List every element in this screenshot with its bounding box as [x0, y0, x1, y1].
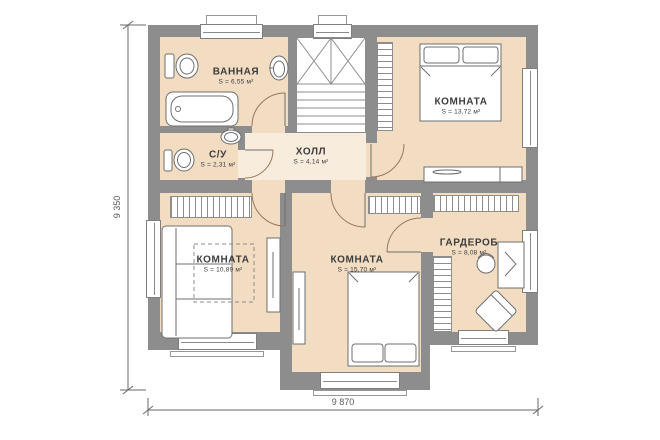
toilet-icon [165, 54, 198, 78]
door-arc-wc [245, 150, 273, 178]
room-name: КОМНАТА [434, 97, 487, 108]
room-name: С/У [200, 150, 235, 161]
dimension-label-horizontal: 9 870 [332, 397, 355, 407]
plan-symbols-layer [0, 0, 660, 440]
room-area: S = 15,70 м² [330, 267, 383, 274]
door-arc-bathroom [252, 93, 285, 126]
room-name: КОМНАТА [196, 255, 249, 266]
room-area: S = 4,14 м² [293, 159, 328, 166]
dimension-label-vertical: 9 350 [112, 196, 122, 219]
room-area: S = 13,72 м² [434, 109, 487, 116]
wardrobe-cabinet-icon [267, 238, 280, 312]
room-label-wardrobe: ГАРДЕРОБ S = 8,08 м² [440, 238, 498, 257]
door-arc-bedroom-center [331, 193, 365, 227]
bathtub-icon [166, 92, 238, 126]
room-area: S = 8,08 м² [440, 250, 498, 257]
room-label-bedroom-center: КОМНАТА S = 15,70 м² [330, 255, 383, 274]
wardrobe-cabinet-icon [293, 272, 305, 344]
room-area: S = 10,89 м² [196, 267, 249, 274]
sofa-icon [162, 226, 232, 338]
stairs-icon [297, 38, 366, 133]
room-area: S = 6,55 м² [213, 79, 259, 86]
sink-icon [269, 56, 288, 80]
door-arc-bedroom-top [371, 144, 404, 177]
armchair-icon [475, 290, 517, 332]
sink-icon [221, 128, 241, 144]
dresser-icon [424, 167, 522, 182]
room-area: S = 2,31 м² [200, 162, 235, 169]
room-label-hall: ХОЛЛ S = 4,14 м² [293, 147, 328, 166]
room-label-bedroom-left: КОМНАТА S = 10,89 м² [196, 255, 249, 274]
room-name: ХОЛЛ [293, 147, 328, 158]
floor-plan: ВАННАЯ S = 6,55 м² С/У S = 2,31 м² ХОЛЛ … [0, 0, 660, 440]
door-arc-bedroom-left [252, 193, 285, 226]
room-label-bathroom: ВАННАЯ S = 6,55 м² [213, 67, 259, 86]
door-arc-wardrobe [387, 218, 421, 252]
room-name: ВАННАЯ [213, 67, 259, 78]
room-name: ГАРДЕРОБ [440, 238, 498, 249]
room-label-wc: С/У S = 2,31 м² [200, 150, 235, 169]
room-label-bedroom-top: КОМНАТА S = 13,72 м² [434, 97, 487, 116]
bed-icon [348, 272, 419, 366]
toilet-icon [164, 149, 194, 171]
room-name: КОМНАТА [330, 255, 383, 266]
desk-icon [498, 242, 524, 288]
